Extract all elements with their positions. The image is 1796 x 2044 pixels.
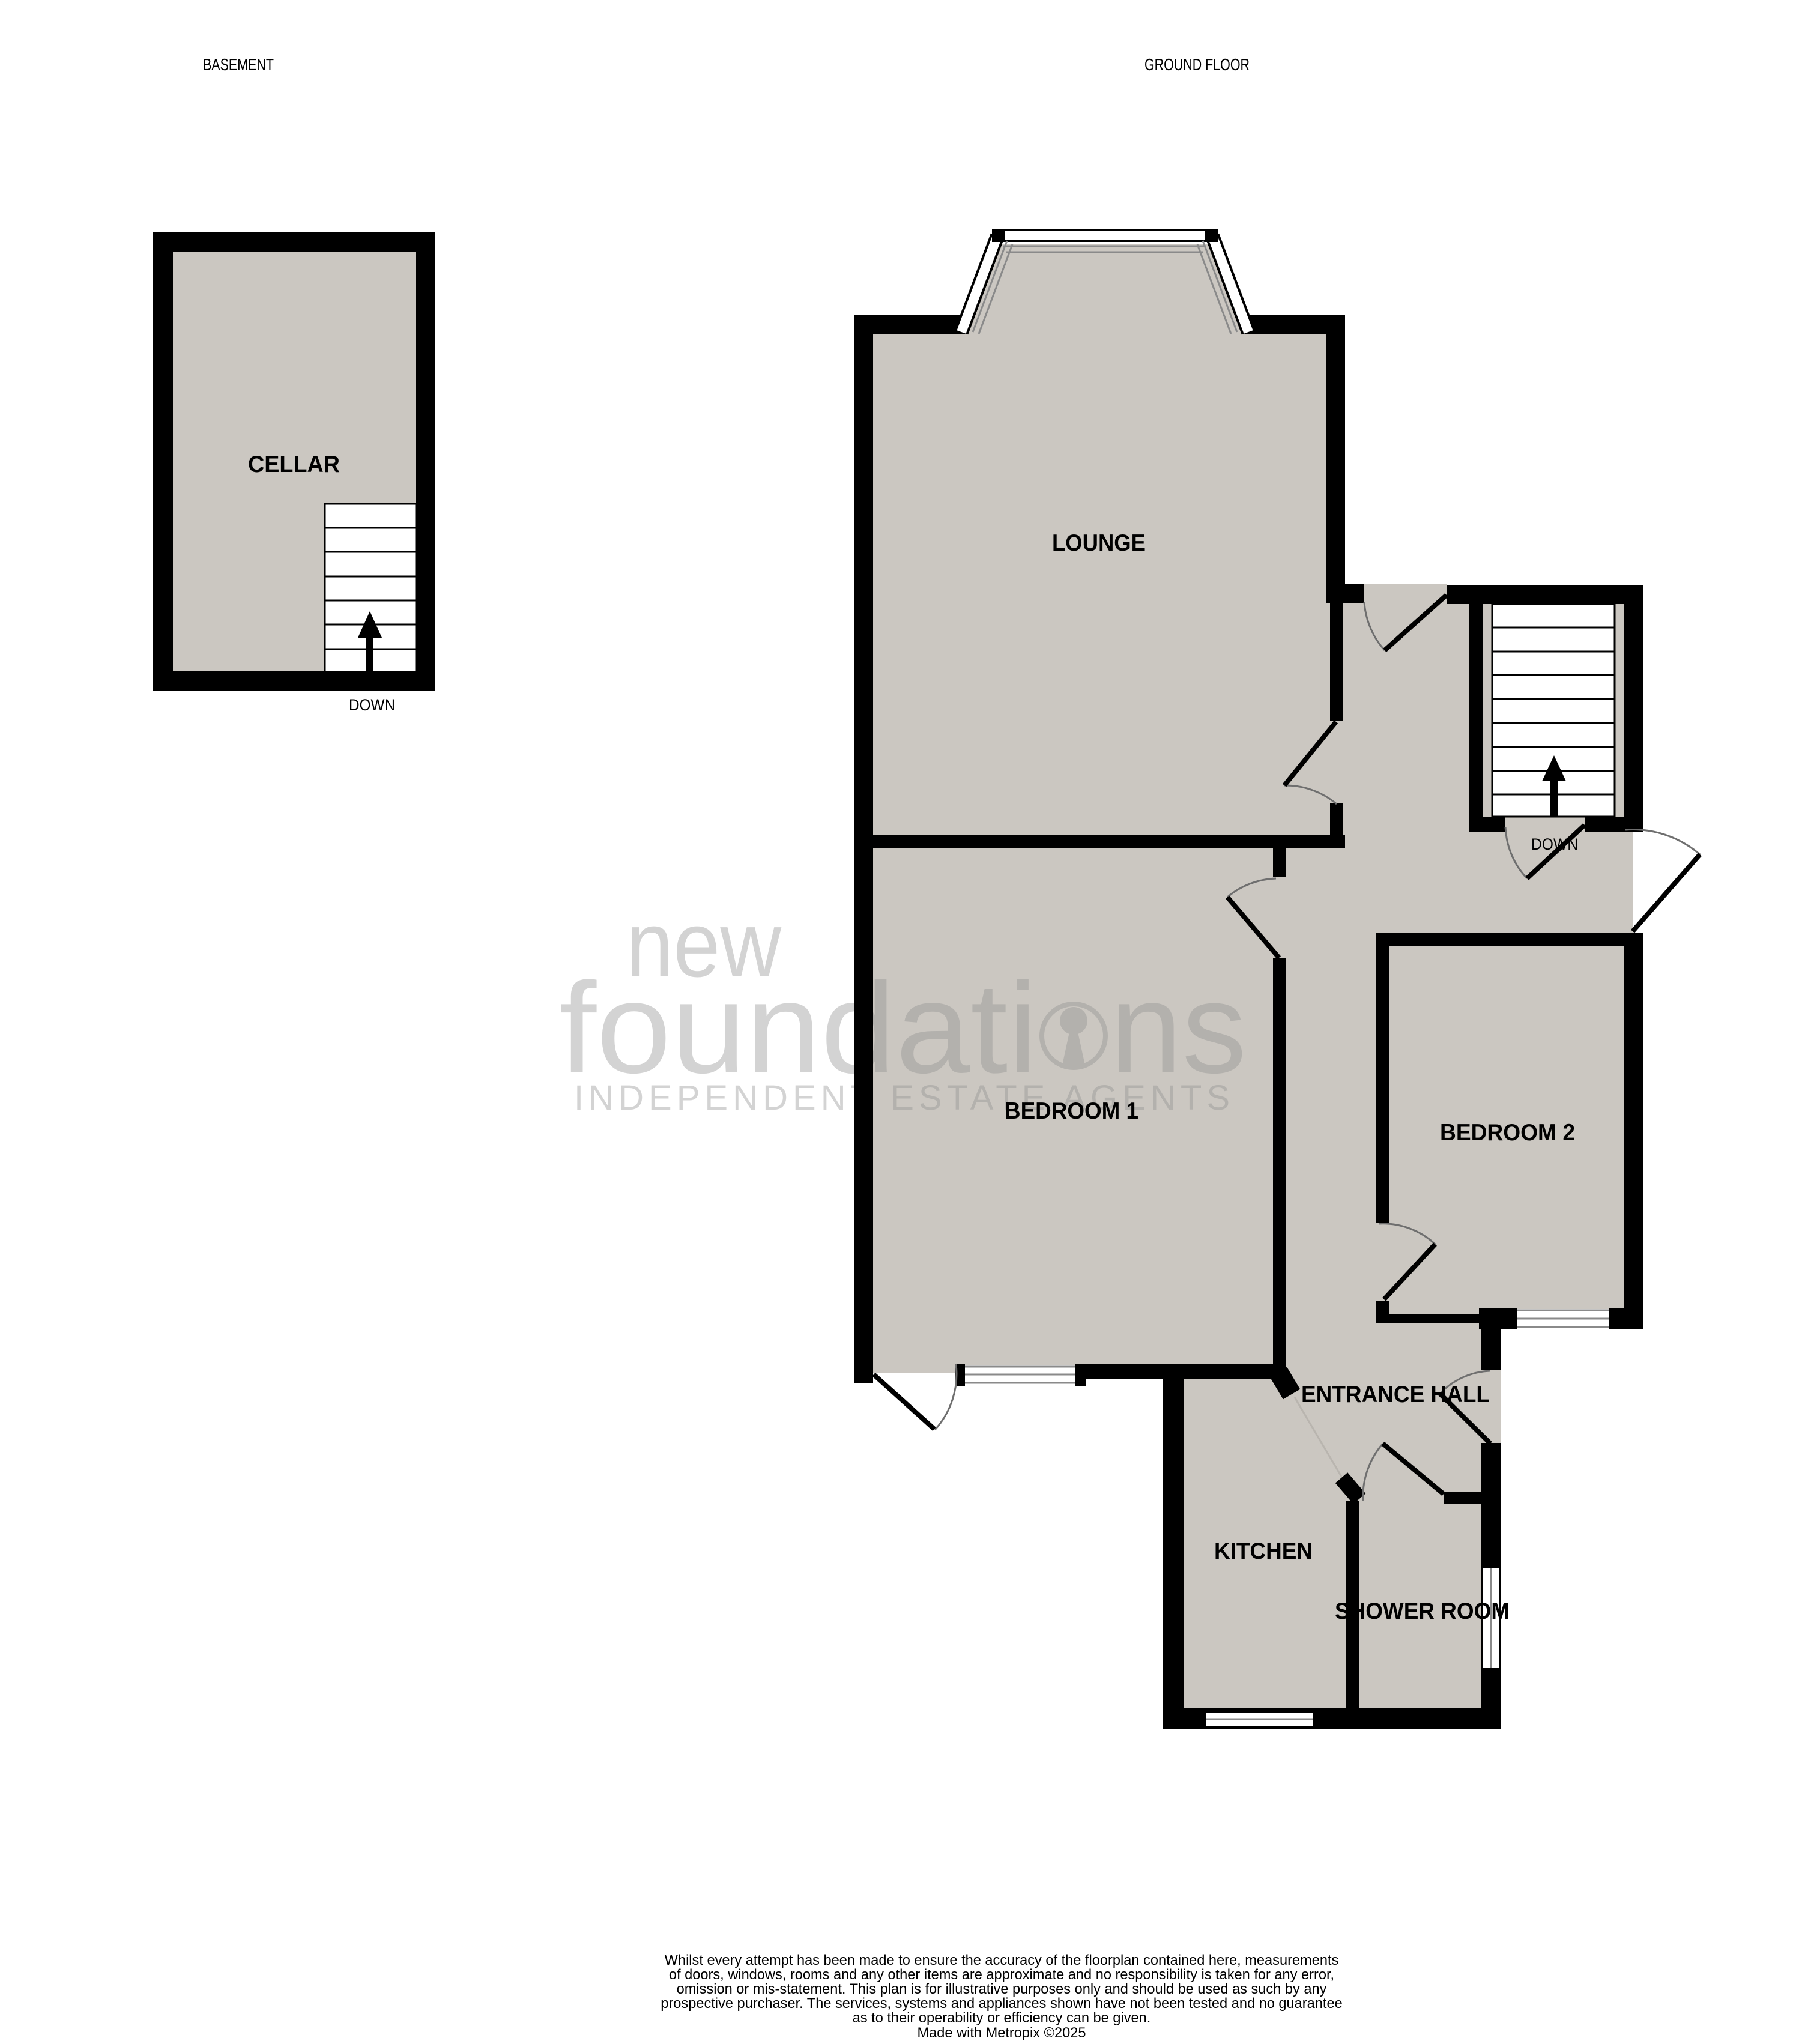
svg-text:BEDROOM 1: BEDROOM 1 bbox=[1005, 1098, 1138, 1124]
svg-text:DOWN: DOWN bbox=[349, 696, 395, 714]
svg-text:CELLAR: CELLAR bbox=[248, 452, 340, 477]
svg-text:BEDROOM 2: BEDROOM 2 bbox=[1440, 1120, 1575, 1146]
svg-text:omission or mis-statement. Thi: omission or mis-statement. This plan is … bbox=[677, 1982, 1327, 1997]
svg-text:DOWN: DOWN bbox=[1531, 835, 1578, 853]
svg-text:KITCHEN: KITCHEN bbox=[1214, 1538, 1313, 1564]
svg-text:as to their operability or eff: as to their operability or efficiency ca… bbox=[853, 2010, 1151, 2026]
svg-text:LOUNGE: LOUNGE bbox=[1052, 530, 1146, 556]
svg-text:of doors, windows, rooms and a: of doors, windows, rooms and any other i… bbox=[669, 1967, 1334, 1983]
svg-text:ENTRANCE HALL: ENTRANCE HALL bbox=[1301, 1382, 1490, 1408]
svg-text:BASEMENT: BASEMENT bbox=[203, 55, 274, 74]
svg-text:prospective purchaser. The ser: prospective purchaser. The services, sys… bbox=[661, 1996, 1342, 2012]
svg-text:GROUND FLOOR: GROUND FLOOR bbox=[1144, 55, 1250, 74]
svg-text:SHOWER ROOM: SHOWER ROOM bbox=[1335, 1598, 1510, 1624]
svg-text:Made with Metropix ©2025: Made with Metropix ©2025 bbox=[918, 2025, 1086, 2041]
svg-text:Whilst every attempt has been: Whilst every attempt has been made to en… bbox=[665, 1953, 1339, 1968]
